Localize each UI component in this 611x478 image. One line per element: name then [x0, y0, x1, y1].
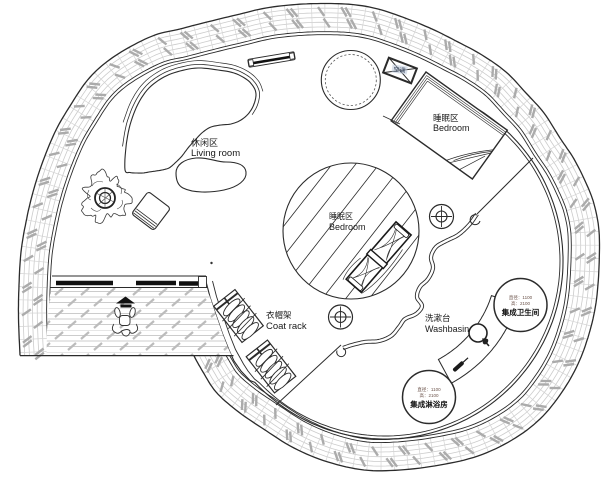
svg-text:休闲区: 休闲区 — [191, 137, 218, 148]
svg-text:Coat rack: Coat rack — [266, 321, 307, 332]
svg-text:高：2100: 高：2100 — [511, 300, 531, 307]
svg-text:睡眠区: 睡眠区 — [433, 113, 459, 123]
svg-text:Bedroom: Bedroom — [329, 222, 366, 232]
svg-text:Living room: Living room — [191, 148, 240, 159]
svg-text:Bedroom: Bedroom — [433, 123, 470, 133]
svg-text:高：2100: 高：2100 — [419, 392, 439, 399]
svg-text:衣帽架: 衣帽架 — [266, 310, 292, 320]
svg-text:洗漱台: 洗漱台 — [425, 313, 451, 323]
svg-text:集成淋浴房: 集成淋浴房 — [409, 399, 448, 409]
svg-text:睡眠区: 睡眠区 — [329, 212, 353, 221]
svg-text:直径：1100: 直径：1100 — [509, 294, 533, 300]
svg-text:Washbasin: Washbasin — [425, 324, 469, 334]
svg-text:直径：1100: 直径：1100 — [417, 386, 441, 392]
svg-text:集成卫生间: 集成卫生间 — [501, 307, 540, 317]
